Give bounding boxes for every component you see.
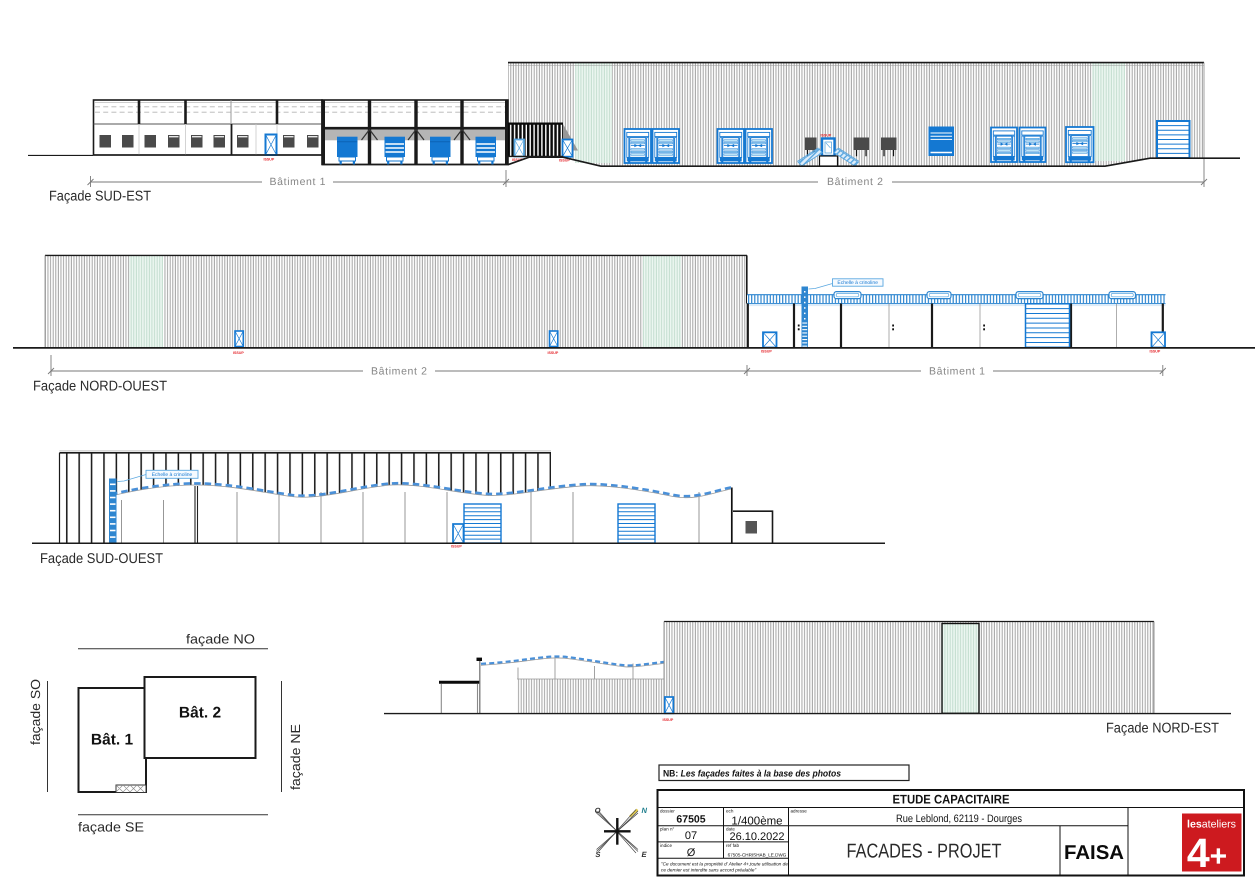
svg-text:N: N	[642, 806, 648, 815]
svg-text:Ø: Ø	[687, 847, 696, 859]
svg-text:Bâtiment 2: Bâtiment 2	[827, 176, 883, 188]
svg-text:O: O	[595, 806, 601, 815]
svg-text:ech: ech	[726, 809, 734, 814]
svg-text:FACADES - PROJET: FACADES - PROJET	[847, 841, 1002, 863]
svg-text:ISSUP: ISSUP	[663, 718, 674, 722]
svg-text:Bâtiment 2: Bâtiment 2	[371, 365, 427, 377]
svg-text:1/400ème: 1/400ème	[731, 816, 782, 828]
svg-text:lesateliers: lesateliers	[1187, 819, 1237, 831]
svg-text:ISSUP: ISSUP	[761, 350, 772, 354]
svg-text:dossier: dossier	[660, 809, 675, 814]
svg-text:Façade NORD-OUEST: Façade NORD-OUEST	[33, 379, 167, 395]
svg-text:"Ce document est la propriété: "Ce document est la propriété d' Atelier…	[661, 862, 788, 867]
svg-text:façade NO: façade NO	[186, 632, 255, 647]
svg-text:E: E	[642, 850, 648, 859]
svg-text:FAISA: FAISA	[1064, 842, 1124, 864]
svg-text:ref fab: ref fab	[726, 843, 739, 848]
svg-text:ISSUP: ISSUP	[451, 545, 462, 549]
svg-text:ISSUP: ISSUP	[548, 351, 559, 355]
svg-text:indice: indice	[660, 843, 672, 848]
svg-text:ETUDE CAPACITAIRE: ETUDE CAPACITAIRE	[893, 793, 1010, 807]
svg-text:Bâtiment 1: Bâtiment 1	[270, 176, 326, 188]
svg-text:Bât. 1: Bât. 1	[91, 732, 134, 749]
svg-text:ISSUP: ISSUP	[1150, 350, 1161, 354]
svg-text:Rue Leblond, 62119 - Dourges: Rue Leblond, 62119 - Dourges	[896, 813, 1023, 825]
svg-text:Façade SUD-OUEST: Façade SUD-OUEST	[40, 551, 163, 567]
svg-text:S: S	[595, 850, 600, 859]
svg-text:ce dernier est interdite sans: ce dernier est interdite sans accord pré…	[661, 868, 757, 873]
svg-text:ISSUP: ISSUP	[821, 134, 832, 138]
svg-text:Echelle à crinoline: Echelle à crinoline	[837, 280, 878, 286]
svg-text:07: 07	[685, 830, 697, 842]
svg-text:Bât. 2: Bât. 2	[179, 705, 221, 722]
svg-text:plan n°: plan n°	[660, 827, 675, 832]
svg-text:ISSUP: ISSUP	[233, 351, 244, 355]
svg-text:façade NE: façade NE	[288, 724, 303, 790]
svg-text:façade SO: façade SO	[28, 679, 43, 745]
svg-text:67505: 67505	[676, 814, 705, 826]
svg-text:Façade SUD-EST: Façade SUD-EST	[49, 189, 151, 205]
svg-text:adresse: adresse	[791, 809, 808, 814]
svg-text:ISSUP: ISSUP	[264, 158, 275, 162]
svg-text:67505-CHRISHAB_LE.DWG: 67505-CHRISHAB_LE.DWG	[728, 853, 787, 858]
svg-text:Bâtiment 1: Bâtiment 1	[929, 365, 985, 377]
svg-text:26.10.2022: 26.10.2022	[729, 831, 784, 843]
svg-text:façade SE: façade SE	[78, 820, 144, 835]
svg-text:Façade NORD-EST: Façade NORD-EST	[1106, 721, 1219, 737]
svg-text:NB: Les façades faites à la ba: NB: Les façades faites à la base des pho…	[663, 767, 841, 778]
svg-text:Echelle à crinoline: Echelle à crinoline	[152, 472, 193, 478]
